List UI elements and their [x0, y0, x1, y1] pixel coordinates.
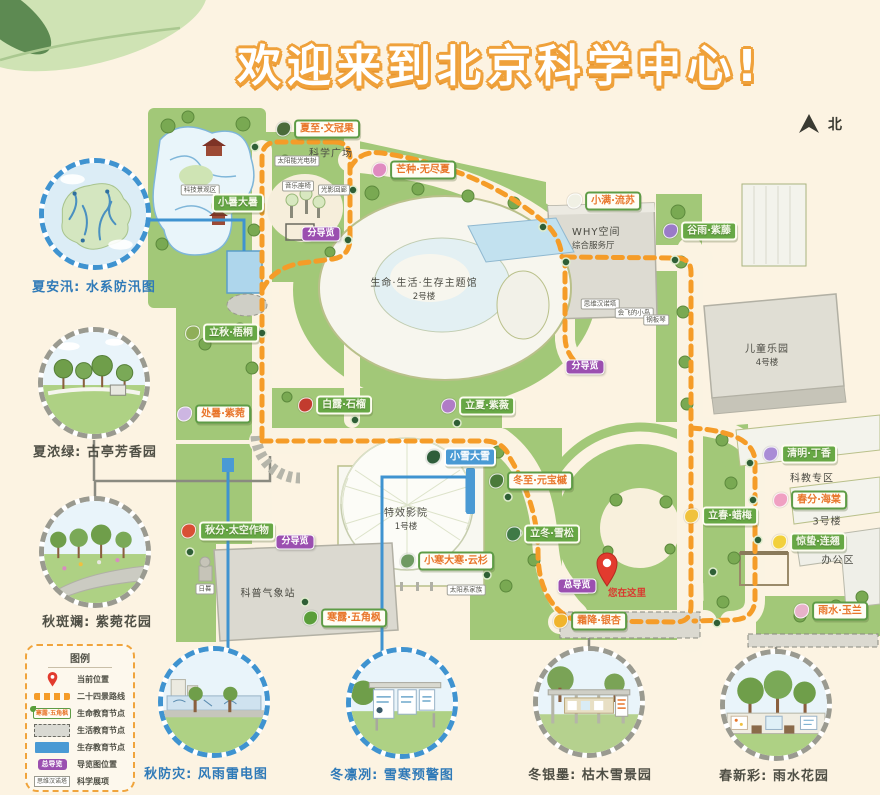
maple-leaf-icon [303, 611, 318, 626]
building-label: 办公区 [822, 552, 855, 567]
building-label: 儿童乐园4号楼 [745, 340, 789, 368]
exhibit-label: 思维汉诺塔 [581, 299, 620, 310]
vignette-caption: 秋斑斓: 紫菀花园 [42, 611, 152, 630]
solar-term-label: 惊蛰·连翘 [790, 533, 846, 552]
solar-term-node: 霜降·银杏 [553, 612, 627, 631]
magnolia-icon [794, 604, 809, 619]
page-title: 欢迎来到北京科学中心! [150, 30, 850, 94]
aster-garden-scene [44, 501, 146, 603]
legend-label: 生命教育节点 [77, 708, 125, 719]
solar-term-label: 霜降·银杏 [571, 612, 627, 631]
main-guide-pill: 总导览 [557, 579, 596, 594]
pomegranate-icon [298, 398, 313, 413]
route-dash-icon [34, 693, 70, 700]
science-center-map-poster: 欢迎来到北京科学中心! 北 [0, 0, 880, 795]
legend-item-guide-map: 总导览 导览图位置 [32, 756, 128, 773]
solar-term-label: 白露·石榴 [316, 396, 372, 415]
solar-term-node: 清明·丁香 [763, 445, 837, 464]
snow-garden-scene [538, 651, 640, 753]
building-label: 生命·生活·生存主题馆2号楼 [370, 274, 477, 302]
solar-term-label: 雨水·玉兰 [812, 602, 868, 621]
you-are-here-label: 您在这里 [608, 585, 646, 599]
vignette-storm-wall [158, 646, 270, 758]
legend-item-life-node: 寒露·五角枫 生命教育节点 [32, 705, 128, 722]
solar-term-node: 小雪大雪 [426, 448, 496, 467]
guide-pill-sample: 总导览 [38, 759, 67, 770]
exhibit-label: 日晷 [196, 584, 215, 595]
legend-item-living-node: 生活教育节点 [32, 722, 128, 739]
location-pin-icon [47, 672, 58, 687]
solar-term-label: 小满·流苏 [585, 192, 641, 211]
hydrangea-icon [372, 163, 387, 178]
exhibit-label: 太阳能光电树 [275, 156, 320, 167]
crape-myrtle-icon [441, 399, 456, 414]
vignette-caption: 秋防灾: 风雨雷电图 [144, 763, 268, 782]
wintersweet-icon [684, 509, 699, 524]
solar-term-node: 谷雨·紫藤 [663, 222, 737, 241]
sub-guide-pill: 分导览 [565, 360, 604, 375]
dark-leaf-icon [426, 450, 441, 465]
solar-term-node: 小寒大寒·云杉 [400, 552, 494, 571]
solar-term-label: 处暑·紫菀 [195, 405, 251, 424]
solar-term-node: 冬至·元宝槭 [489, 472, 573, 491]
north-arrow-icon [795, 112, 823, 136]
solar-term-node: 立秋·梧桐 [185, 324, 259, 343]
legend-label: 生活教育节点 [77, 725, 125, 736]
solar-term-label: 立秋·梧桐 [203, 324, 259, 343]
rain-garden-scene [725, 654, 827, 756]
vignette-aster-garden [39, 496, 151, 608]
vignette-ancient-pavilion-garden [38, 327, 150, 439]
solar-term-node: 夏至·文冠果 [276, 120, 360, 139]
vignette-withered-wood-snow-garden [533, 646, 645, 758]
building-label: WHY空间综合服务厅 [572, 223, 621, 251]
solar-term-node: 寒露·五角枫 [303, 609, 387, 628]
exhibit-box-sample: 思维汉诺塔 [34, 776, 70, 787]
sub-guide-pill: 分导览 [275, 535, 314, 550]
flood-map-scene [44, 163, 146, 265]
building-label: 科普气象站 [241, 585, 296, 600]
solar-term-node: 小满·流苏 [567, 192, 641, 211]
solar-term-label: 立春·蜡梅 [702, 507, 758, 526]
vignette-flood-map [39, 158, 151, 270]
legend-item-survival-node: 生存教育节点 [32, 739, 128, 756]
solar-term-label: 冬至·元宝槭 [507, 472, 573, 491]
vignette-caption: 夏安汛: 水系防汛图 [32, 276, 156, 295]
vignette-snow-warning-boards [346, 647, 458, 759]
legend-label: 二十四景路线 [77, 691, 125, 702]
living-node-sample [34, 724, 70, 737]
legend: 图例 当前位置 二十四景路线 寒露·五角枫 生命教育节点 生活教育节点 生存教育… [25, 644, 135, 792]
aster-icon [177, 407, 192, 422]
warning-boards-scene [351, 652, 453, 754]
solar-term-node: 立夏·紫薇 [441, 397, 515, 416]
exhibit-label: 太阳系家族 [447, 585, 486, 596]
solar-term-label: 芒种·无尽夏 [390, 161, 456, 180]
solar-term-label: 小暑大暑 [212, 194, 264, 213]
solar-term-label: 寒露·五角枫 [321, 609, 387, 628]
exhibit-label: 钢板琴 [643, 315, 669, 326]
solar-term-label: 清明·丁香 [781, 445, 837, 464]
legend-item-current-location: 当前位置 [32, 671, 128, 688]
spruce-icon [400, 554, 415, 569]
exhibit-label: 音乐座椅 [282, 181, 314, 192]
legend-label: 当前位置 [77, 674, 109, 685]
yellowhorn-bird-icon [276, 122, 291, 137]
exhibit-label: 光影回廊 [318, 185, 350, 196]
lilac-icon [763, 447, 778, 462]
building-label: 特效影院1号楼 [384, 504, 428, 532]
solar-term-label: 夏至·文冠果 [294, 120, 360, 139]
life-node-sample: 寒露·五角枫 [33, 708, 71, 719]
crabapple-icon [773, 493, 788, 508]
legend-label: 导览图位置 [77, 759, 117, 770]
ginkgo-icon [553, 614, 568, 629]
building-label: 3号楼 [812, 513, 841, 528]
space-crops-icon [181, 524, 196, 539]
solar-term-label: 秋分·太空作物 [199, 522, 275, 541]
solar-term-node: 白露·石榴 [298, 396, 372, 415]
forsythia-icon [772, 535, 787, 550]
solar-term-node: 立冬·雪松 [506, 525, 580, 544]
legend-item-science-exhibit: 思维汉诺塔 科学展项 [32, 773, 128, 790]
solar-term-node: 雨水·玉兰 [794, 602, 868, 621]
vignette-caption: 冬凛冽: 雪寒预警图 [330, 764, 454, 783]
parasol-leaf-icon [185, 326, 200, 341]
fringe-tree-icon [567, 194, 582, 209]
solar-term-node: 芒种·无尽夏 [372, 161, 456, 180]
solar-term-node: 立春·蜡梅 [684, 507, 758, 526]
solar-term-node: 处暑·紫菀 [177, 405, 251, 424]
legend-label: 生存教育节点 [77, 742, 125, 753]
solar-term-node: 小暑大暑 [212, 194, 264, 213]
solar-term-node: 惊蛰·连翘 [772, 533, 846, 552]
maple-leaf-icon [30, 706, 36, 712]
maple-seed-icon [489, 474, 504, 489]
north-label: 北 [828, 114, 842, 134]
legend-item-route: 二十四景路线 [32, 688, 128, 705]
solar-term-label: 立夏·紫薇 [459, 397, 515, 416]
wisteria-icon [663, 224, 678, 239]
solar-term-node: 春分·海棠 [773, 491, 847, 510]
pavilion-garden-scene [43, 332, 145, 434]
vignette-caption: 夏浓绿: 古亭芳香园 [33, 441, 157, 460]
building-label: 科教专区 [790, 470, 834, 485]
legend-title: 图例 [48, 650, 112, 668]
solar-term-label: 小雪大雪 [444, 448, 496, 467]
survival-node-sample [35, 742, 69, 753]
storm-wall-scene [163, 651, 265, 753]
compass: 北 [795, 112, 842, 136]
vignette-rain-garden [720, 649, 832, 761]
vignette-caption: 冬银墨: 枯木雪景园 [528, 764, 652, 783]
solar-term-label: 春分·海棠 [791, 491, 847, 510]
vignette-caption: 春新彩: 雨水花园 [719, 765, 829, 784]
solar-term-label: 谷雨·紫藤 [681, 222, 737, 241]
solar-term-label: 立冬·雪松 [524, 525, 580, 544]
sub-guide-pill: 分导览 [301, 227, 340, 242]
solar-term-label: 小寒大寒·云杉 [418, 552, 494, 571]
cedar-icon [506, 527, 521, 542]
legend-label: 科学展项 [77, 776, 109, 787]
solar-term-node: 秋分·太空作物 [181, 522, 275, 541]
